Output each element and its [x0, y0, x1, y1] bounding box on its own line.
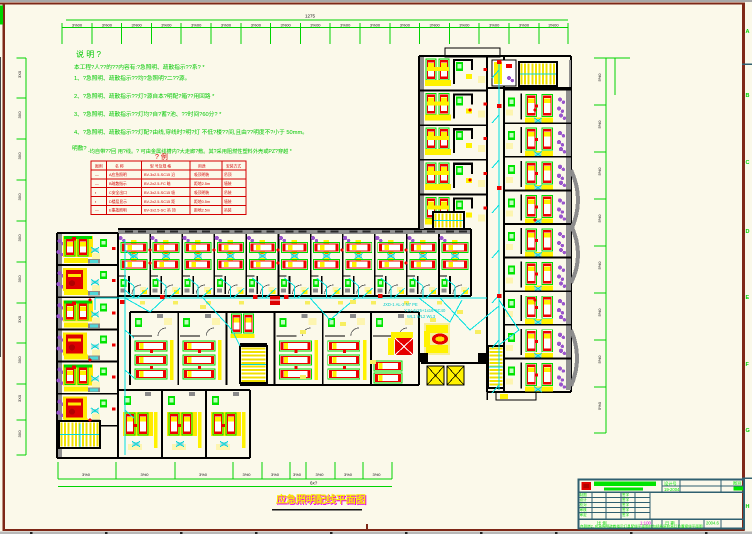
svg-text:墙装: 墙装 [224, 181, 232, 186]
svg-text:3X0: 3X0 [17, 234, 22, 242]
svg-text:3X0: 3X0 [17, 152, 22, 160]
svg-text:A: A [746, 29, 750, 35]
svg-text:E: E [746, 295, 750, 301]
svg-text:B: B [746, 93, 750, 99]
svg-text:制图: 制图 [580, 492, 588, 497]
svg-text:? 例: ? 例 [155, 152, 168, 161]
svg-text:3%00: 3%00 [548, 23, 559, 28]
svg-text:C: C [746, 160, 750, 166]
svg-text:3%00: 3%00 [459, 23, 470, 28]
svg-text:H: H [746, 504, 750, 510]
svg-text:3%00: 3%00 [281, 23, 292, 28]
svg-text:应急照明配线平面图: 应急照明配线平面图 [276, 493, 366, 506]
svg-text:签字: 签字 [622, 502, 630, 507]
svg-text:6x?: 6x? [310, 481, 318, 486]
svg-text:G: G [746, 428, 750, 434]
svg-text:BV-3x2.5-SC15 吸: BV-3x2.5-SC15 吸 [144, 191, 175, 195]
svg-text:名 称: 名 称 [115, 164, 124, 169]
svg-text:5%0: 5%0 [597, 401, 602, 410]
svg-text:审定: 审定 [580, 512, 588, 517]
svg-text:设计: 设计 [580, 497, 588, 502]
svg-text:3%00: 3%00 [251, 23, 262, 28]
svg-text:3%00: 3%00 [161, 23, 172, 28]
svg-text:3%00: 3%00 [370, 23, 381, 28]
svg-text:3X0: 3X0 [17, 394, 22, 402]
svg-text:距地2.5m: 距地2.5m [194, 181, 210, 186]
svg-text:墙装: 墙装 [224, 199, 232, 204]
svg-text:3%00: 3%00 [430, 23, 441, 28]
svg-text:3%00: 3%00 [132, 23, 143, 28]
svg-text:1275: 1275 [305, 14, 316, 19]
svg-text:D: D [746, 229, 750, 235]
svg-text:3%00: 3%00 [489, 23, 500, 28]
svg-text:3X0: 3X0 [17, 356, 22, 364]
svg-text:5%0: 5%0 [597, 167, 602, 176]
svg-text:E事故照明: E事故照明 [109, 208, 127, 213]
svg-text:3%0: 3%0 [243, 472, 252, 477]
svg-text:JXD-1 AL-2 N7 PE: JXD-1 AL-2 N7 PE [383, 302, 418, 307]
svg-text:3%0: 3%0 [199, 472, 208, 477]
svg-text:-均自带??回 用?线。? 可由金属线槽内?大走廊?敷。其?: -均自带??回 用?线。? 可由金属线槽内?大走廊?敷。其?采用阻燃性塑料外壳或… [88, 147, 292, 155]
svg-text:吊装: 吊装 [224, 190, 232, 195]
svg-text:3%0: 3%0 [293, 472, 302, 477]
svg-text:型 号及规 格: 型 号及规 格 [150, 164, 171, 169]
svg-text:3%00: 3%00 [72, 23, 83, 28]
svg-text:3、?急照明、疏散指示??灯均?自?蓄?池、??时间?60分: 3、?急照明、疏散指示??灯均?自?蓄?池、??时间?60分? * [74, 110, 222, 118]
svg-text:5%0: 5%0 [597, 261, 602, 270]
svg-text:3%0: 3%0 [82, 472, 91, 477]
svg-text:5%0: 5%0 [597, 73, 602, 82]
svg-text:签字: 签字 [622, 492, 630, 497]
svg-text:5%0: 5%0 [597, 120, 602, 129]
svg-text:3%00: 3%00 [191, 23, 202, 28]
svg-text:—: — [95, 173, 99, 177]
svg-text:距地2.5m: 距地2.5m [194, 208, 210, 213]
svg-text:BV-3x2.5-SC15 沿: BV-3x2.5-SC15 沿 [144, 172, 175, 177]
svg-text:安装方式: 安装方式 [226, 164, 241, 169]
svg-text:2、?急照明、疏散指示??灯?源自本?明配?箱??用回路 *: 2、?急照明、疏散指示??灯?源自本?明配?箱??用回路 * [74, 92, 215, 100]
svg-text:吊装: 吊装 [224, 208, 232, 213]
svg-text:3%0: 3%0 [141, 472, 150, 477]
svg-text:B疏散指示: B疏散指示 [109, 181, 127, 186]
svg-text:2004.6: 2004.6 [706, 521, 719, 526]
svg-text:5%0: 5%0 [597, 355, 602, 364]
svg-text:YJV-4x25+1x16-SC40: YJV-4x25+1x16-SC40 [404, 308, 446, 313]
svg-text:3%0: 3%0 [344, 472, 353, 477]
svg-text:签字: 签字 [622, 497, 630, 502]
svg-text:3X0: 3X0 [17, 430, 22, 438]
svg-text:距地0.5m: 距地0.5m [194, 199, 210, 204]
svg-text:图别: 图别 [733, 480, 741, 487]
svg-text:明敷?: 明敷? [72, 144, 87, 152]
svg-text:3%00: 3%00 [400, 23, 411, 28]
svg-text:签字: 签字 [622, 507, 630, 512]
svg-text:吊顶: 吊顶 [224, 172, 232, 177]
svg-text:—: — [95, 209, 99, 213]
svg-text:自阻燃2. 应急照明疏散指示灯具配线平面图共包括各层应急灯位: 自阻燃2. 应急照明疏散指示灯具配线平面图共包括各层应急灯位置接线平面图 [580, 523, 703, 528]
svg-text:3X0: 3X0 [17, 70, 22, 78]
svg-text:3X0: 3X0 [17, 193, 22, 201]
svg-text:3X0: 3X0 [17, 315, 22, 323]
svg-text:1、?急照明、疏散指示??均?急照明?二??源。: 1、?急照明、疏散指示??均?急照明?二??源。 [74, 74, 190, 82]
svg-text:3%00: 3%00 [519, 23, 530, 28]
svg-text:3%0: 3%0 [373, 472, 382, 477]
svg-text:5%0: 5%0 [597, 308, 602, 317]
svg-text:3%00: 3%00 [310, 23, 321, 28]
svg-text:审核: 审核 [580, 507, 588, 512]
svg-text:3%00: 3%00 [102, 23, 113, 28]
svg-text:说 明 ?: 说 明 ? [76, 49, 101, 59]
svg-text:3%00: 3%00 [340, 23, 351, 28]
svg-text:5%0: 5%0 [597, 214, 602, 223]
svg-text:3X0: 3X0 [17, 111, 22, 119]
svg-text:吸顶明装: 吸顶明装 [194, 190, 209, 195]
svg-text:3%0: 3%0 [316, 472, 325, 477]
svg-text:用途: 用途 [198, 164, 206, 169]
svg-text:BV-2x2.5-FC 暗: BV-2x2.5-FC 暗 [144, 181, 171, 186]
svg-text:BV-2x2.5-SC15 距: BV-2x2.5-SC15 距 [144, 199, 175, 204]
svg-text:D楼层显示: D楼层显示 [109, 199, 127, 204]
svg-text:校对: 校对 [580, 502, 588, 507]
svg-text:吸顶明装: 吸顶明装 [194, 172, 209, 177]
svg-text:A应急照明: A应急照明 [109, 172, 127, 177]
svg-text:本工程?人??的??内容有:?急照明、疏散指示??系? *: 本工程?人??的??内容有:?急照明、疏散指示??系? * [74, 63, 205, 71]
svg-text:4、?急照明、疏散指示??灯配?由线,穿线时?明?灯 不低?: 4、?急照明、疏散指示??灯配?由线,穿线时?明?灯 不低?楼??间,且由??明… [74, 128, 308, 136]
svg-text:—: — [95, 182, 99, 186]
svg-text:C安全出口: C安全出口 [109, 190, 127, 195]
svg-text:BV-3x2.5-SC 吊 顶: BV-3x2.5-SC 吊 顶 [144, 208, 176, 213]
svg-text:图例: 图例 [95, 164, 103, 169]
svg-text:设计号: 设计号 [664, 480, 677, 487]
svg-text:签字: 签字 [622, 512, 630, 517]
svg-text:3%0: 3%0 [271, 472, 280, 477]
svg-text:3X0: 3X0 [17, 275, 22, 283]
svg-text:19-2004: 19-2004 [664, 487, 680, 492]
svg-text:3%00: 3%00 [221, 23, 232, 28]
